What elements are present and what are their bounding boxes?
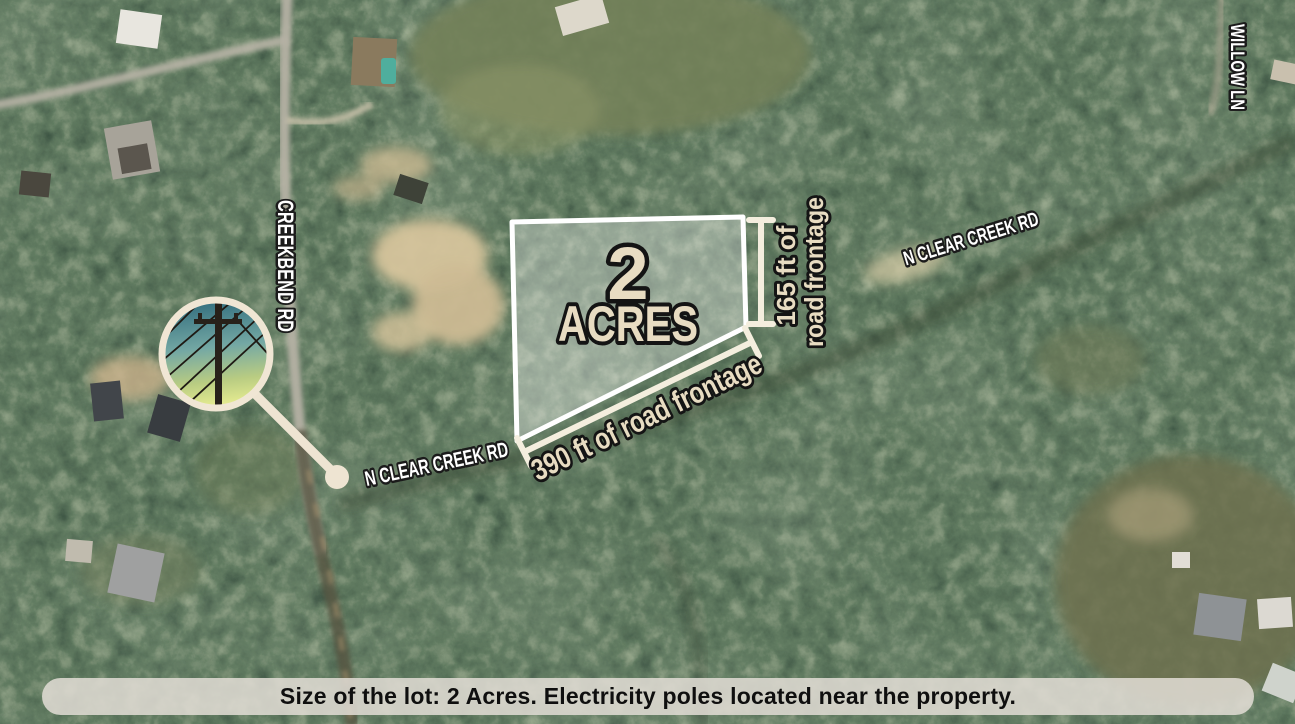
inset-pointer-dot [325, 465, 349, 489]
caption-text: Size of the lot: 2 Acres. Electricity po… [280, 683, 1016, 710]
road-label-creekbend-rd: CREEKBEND RD [273, 200, 298, 332]
shed-roof [1172, 552, 1190, 568]
frontage-label-165: 165 ft of road frontage [771, 197, 829, 347]
lot-acreage-word: ACRES [558, 296, 698, 352]
caption-bar: Size of the lot: 2 Acres. Electricity po… [42, 678, 1254, 715]
swimming-pool [381, 58, 396, 84]
house-roof [107, 544, 164, 603]
shed-roof [65, 539, 93, 563]
house-roof [90, 381, 124, 422]
property-aerial-map: 2 ACRES 165 ft of road frontage 390 ft o… [0, 0, 1295, 724]
house-roof [118, 143, 152, 174]
house-roof [1193, 593, 1246, 641]
house-roof [116, 9, 162, 49]
shed-roof [19, 170, 51, 197]
road-label-willow-ln: WILLOW LN [1226, 24, 1247, 110]
shed-roof [1257, 597, 1293, 629]
dimension-165: 165 ft of road frontage [749, 197, 829, 347]
map-canvas: 2 ACRES 165 ft of road frontage 390 ft o… [0, 0, 1295, 724]
